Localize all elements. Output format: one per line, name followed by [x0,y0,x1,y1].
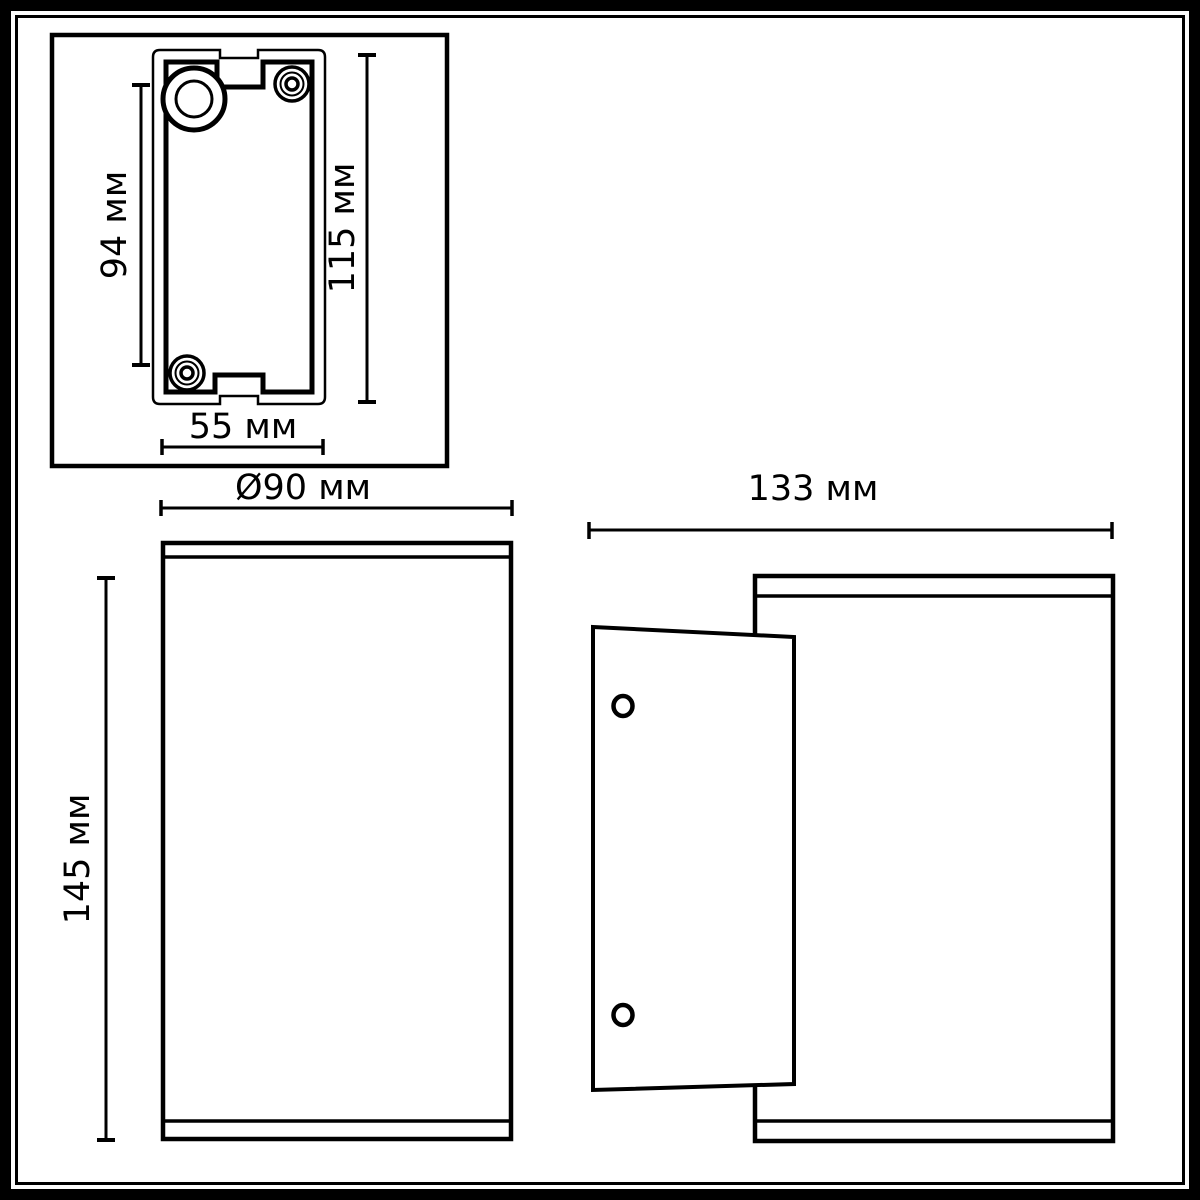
screw-hole-top-right [275,67,309,101]
detail-view-box: 94 мм 115 мм 55 мм [52,35,447,466]
front-body [163,543,511,1139]
dimension-133mm-label: 133 мм [748,469,879,509]
side-body [755,576,1113,1141]
dimension-drawing-page: 94 мм 115 мм 55 мм Ø90 мм [0,0,1200,1200]
plate-screw-hole-bottom [614,1005,633,1025]
dimension-diagram: 94 мм 115 мм 55 мм Ø90 мм [0,0,1200,1200]
dimension-145mm: 145 мм [58,578,115,1140]
dimension-diameter-90mm-label: Ø90 мм [235,468,371,508]
side-view: 133 мм [589,469,1113,1141]
dimension-145mm-label: 145 мм [58,794,98,925]
dimension-94mm-label: 94 мм [95,171,135,279]
dimension-133mm: 133 мм [589,469,1112,539]
dimension-115mm-label: 115 мм [323,163,363,294]
dimension-55mm-label: 55 мм [189,407,297,447]
front-view: Ø90 мм 145 мм [58,468,512,1140]
dimension-diameter-90mm: Ø90 мм [161,468,512,516]
screw-hole-bottom-left [170,356,204,390]
plate-screw-hole-top [614,696,633,716]
cable-hole-inner [176,81,212,117]
